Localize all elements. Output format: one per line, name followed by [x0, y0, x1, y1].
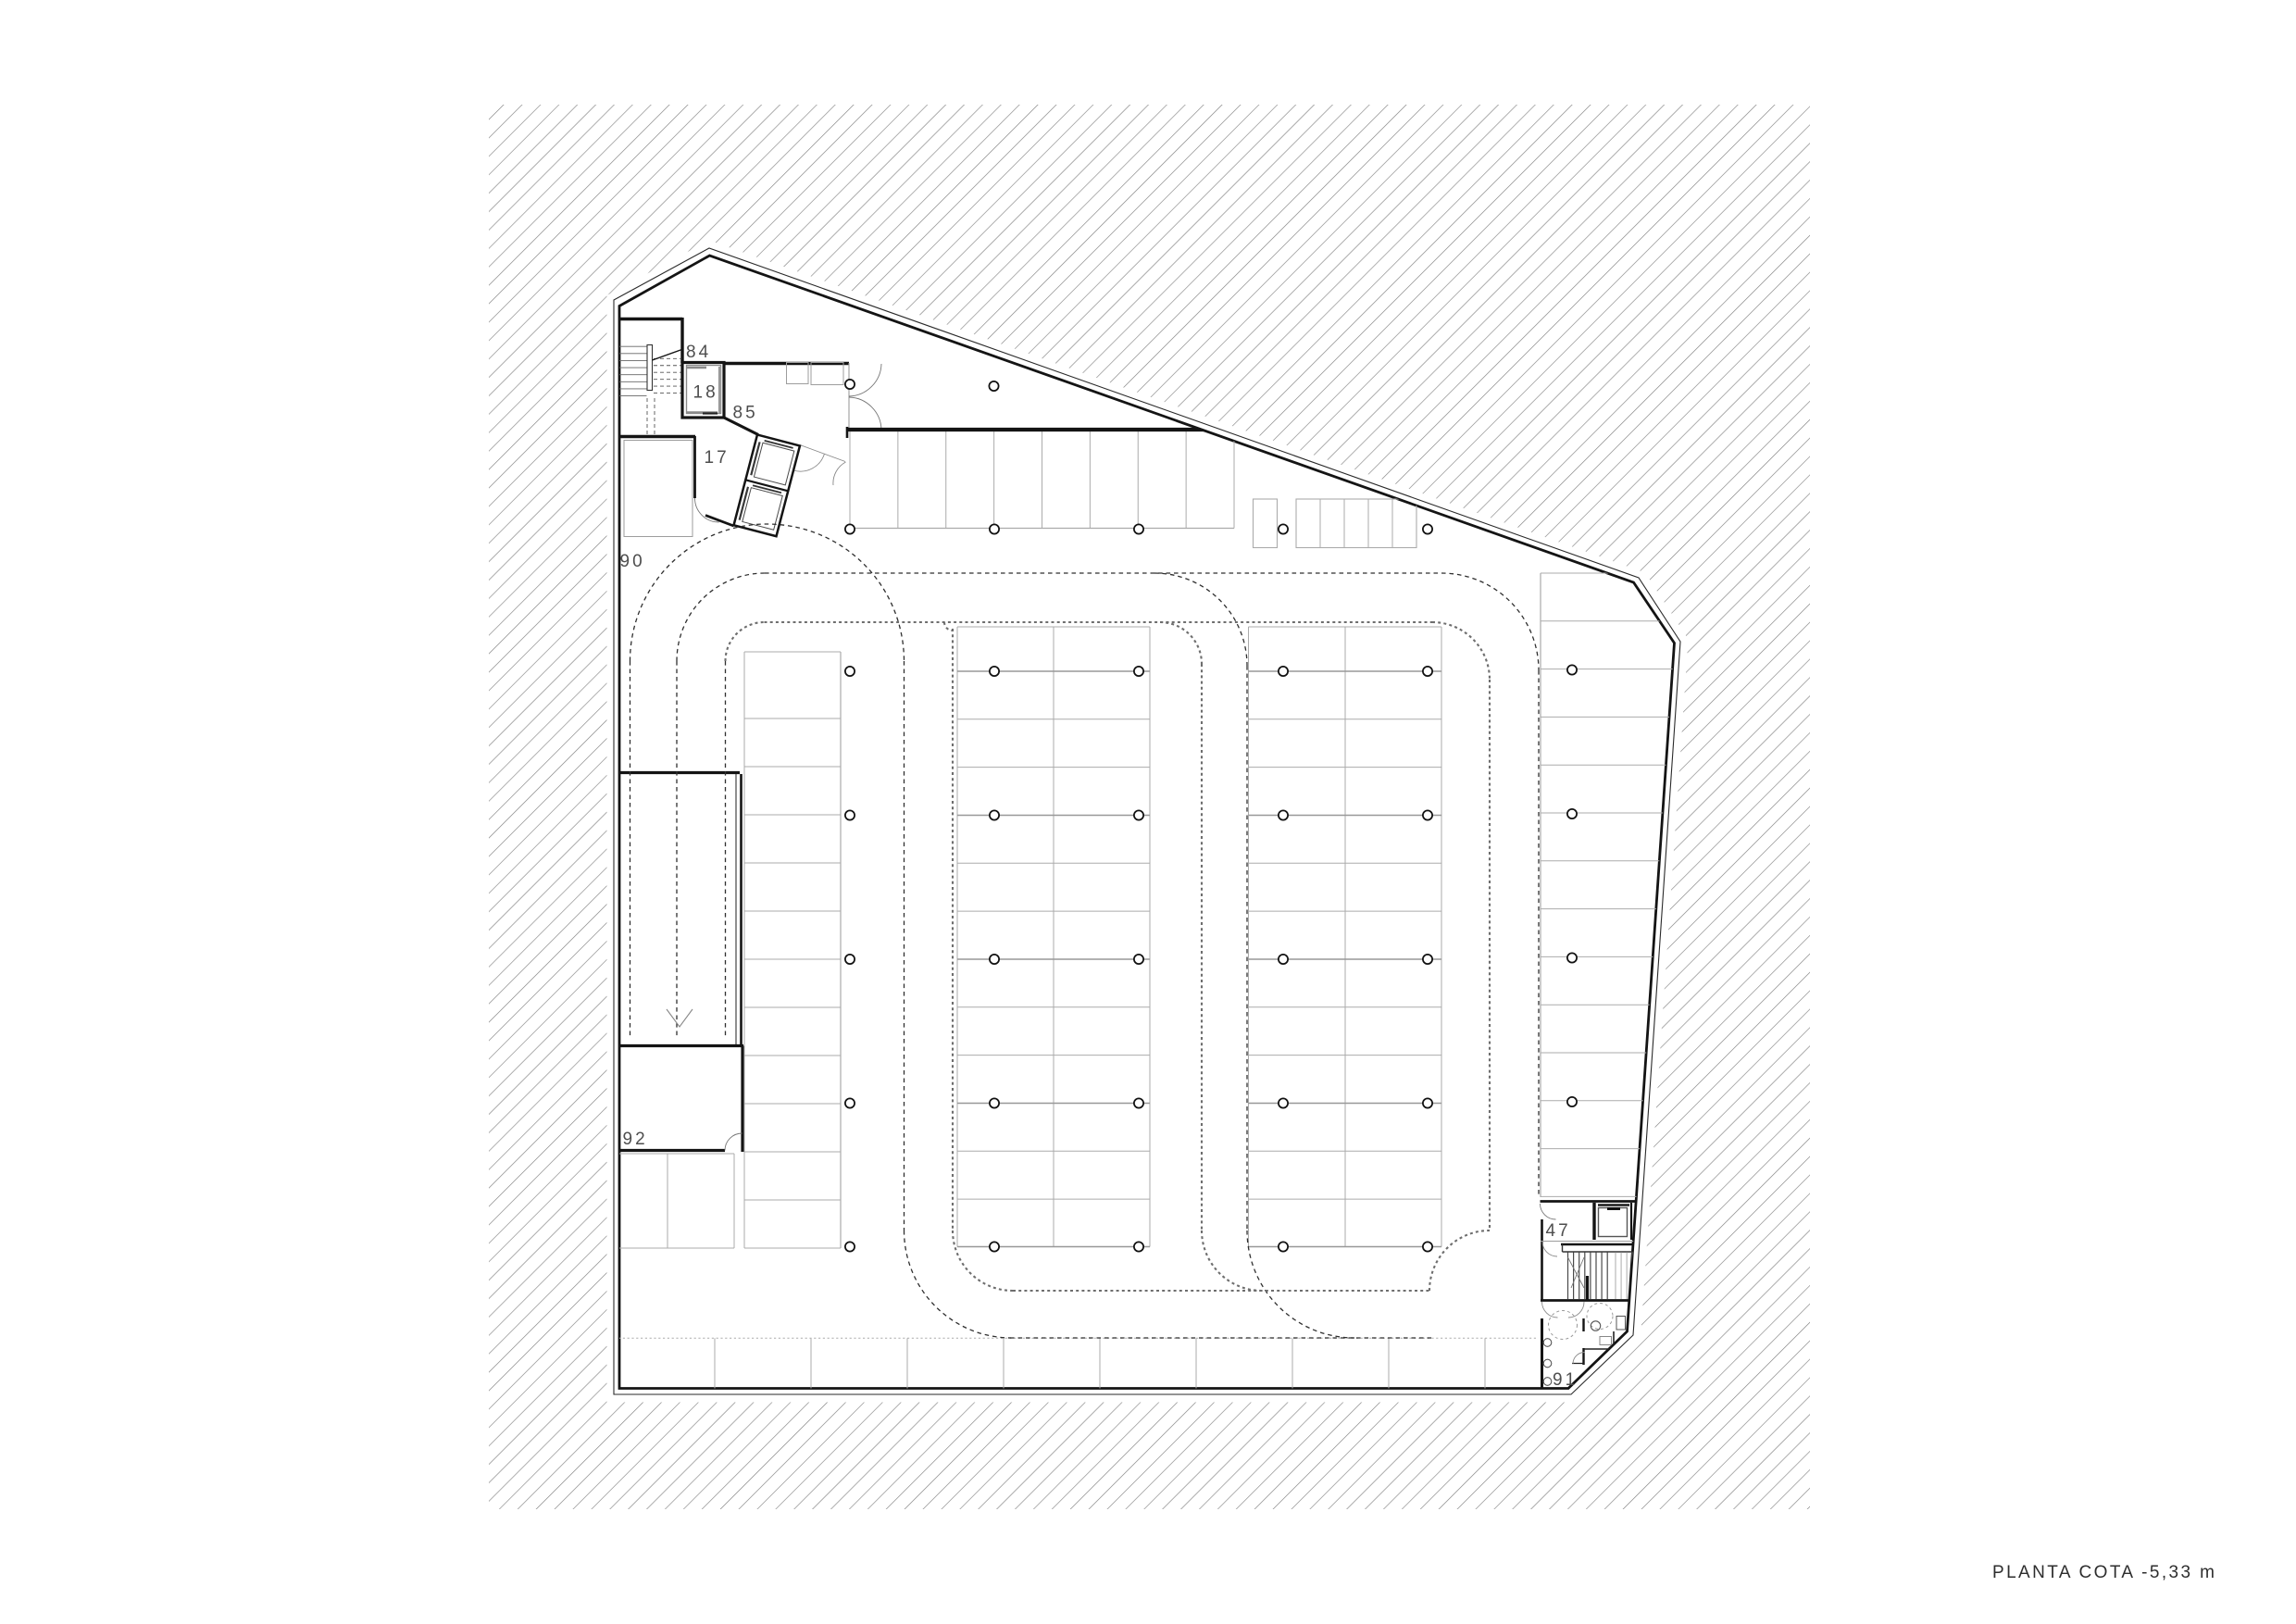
svg-text:17: 17 [705, 448, 730, 468]
svg-text:91: 91 [1553, 1370, 1578, 1390]
svg-text:84: 84 [686, 343, 711, 362]
svg-text:92: 92 [623, 1130, 648, 1149]
svg-text:PLANTA COTA -5,33 m: PLANTA COTA -5,33 m [1992, 1563, 2216, 1582]
svg-text:47: 47 [1546, 1221, 1571, 1241]
svg-text:85: 85 [733, 404, 758, 423]
svg-text:18: 18 [693, 383, 718, 403]
svg-text:90: 90 [620, 552, 645, 571]
